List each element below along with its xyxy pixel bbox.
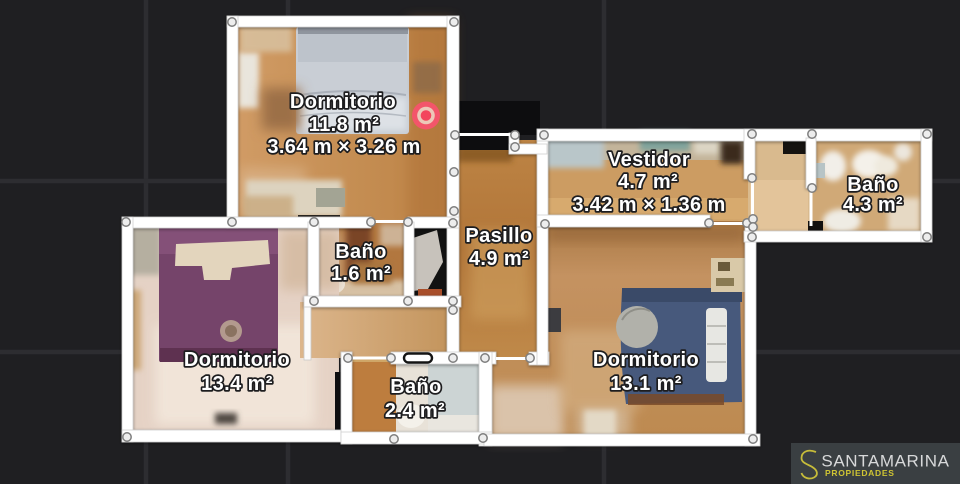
svg-text:Baño: Baño xyxy=(847,174,899,196)
svg-text:3.64 m × 3.26 m: 3.64 m × 3.26 m xyxy=(267,136,420,158)
svg-text:13.1 m²: 13.1 m² xyxy=(610,373,682,395)
svg-text:Baño: Baño xyxy=(335,241,387,263)
svg-text:1.6 m²: 1.6 m² xyxy=(331,263,391,285)
svg-text:3.42 m × 1.36 m: 3.42 m × 1.36 m xyxy=(572,194,725,216)
svg-text:Baño: Baño xyxy=(390,376,442,398)
svg-text:Dormitorio: Dormitorio xyxy=(184,349,290,371)
svg-text:Pasillo: Pasillo xyxy=(465,225,532,247)
svg-text:11.8 m²: 11.8 m² xyxy=(309,114,380,136)
svg-text:Vestidor: Vestidor xyxy=(608,149,690,171)
svg-text:13.4 m²: 13.4 m² xyxy=(201,373,273,395)
svg-text:4.9 m²: 4.9 m² xyxy=(469,248,529,270)
svg-text:Dormitorio: Dormitorio xyxy=(593,349,699,371)
svg-text:4.7 m²: 4.7 m² xyxy=(618,171,678,193)
svg-text:Dormitorio: Dormitorio xyxy=(290,91,396,113)
svg-text:2.4 m²: 2.4 m² xyxy=(385,400,445,422)
svg-text:PROPIEDADES: PROPIEDADES xyxy=(825,468,895,478)
svg-text:4.3 m²: 4.3 m² xyxy=(843,194,903,216)
